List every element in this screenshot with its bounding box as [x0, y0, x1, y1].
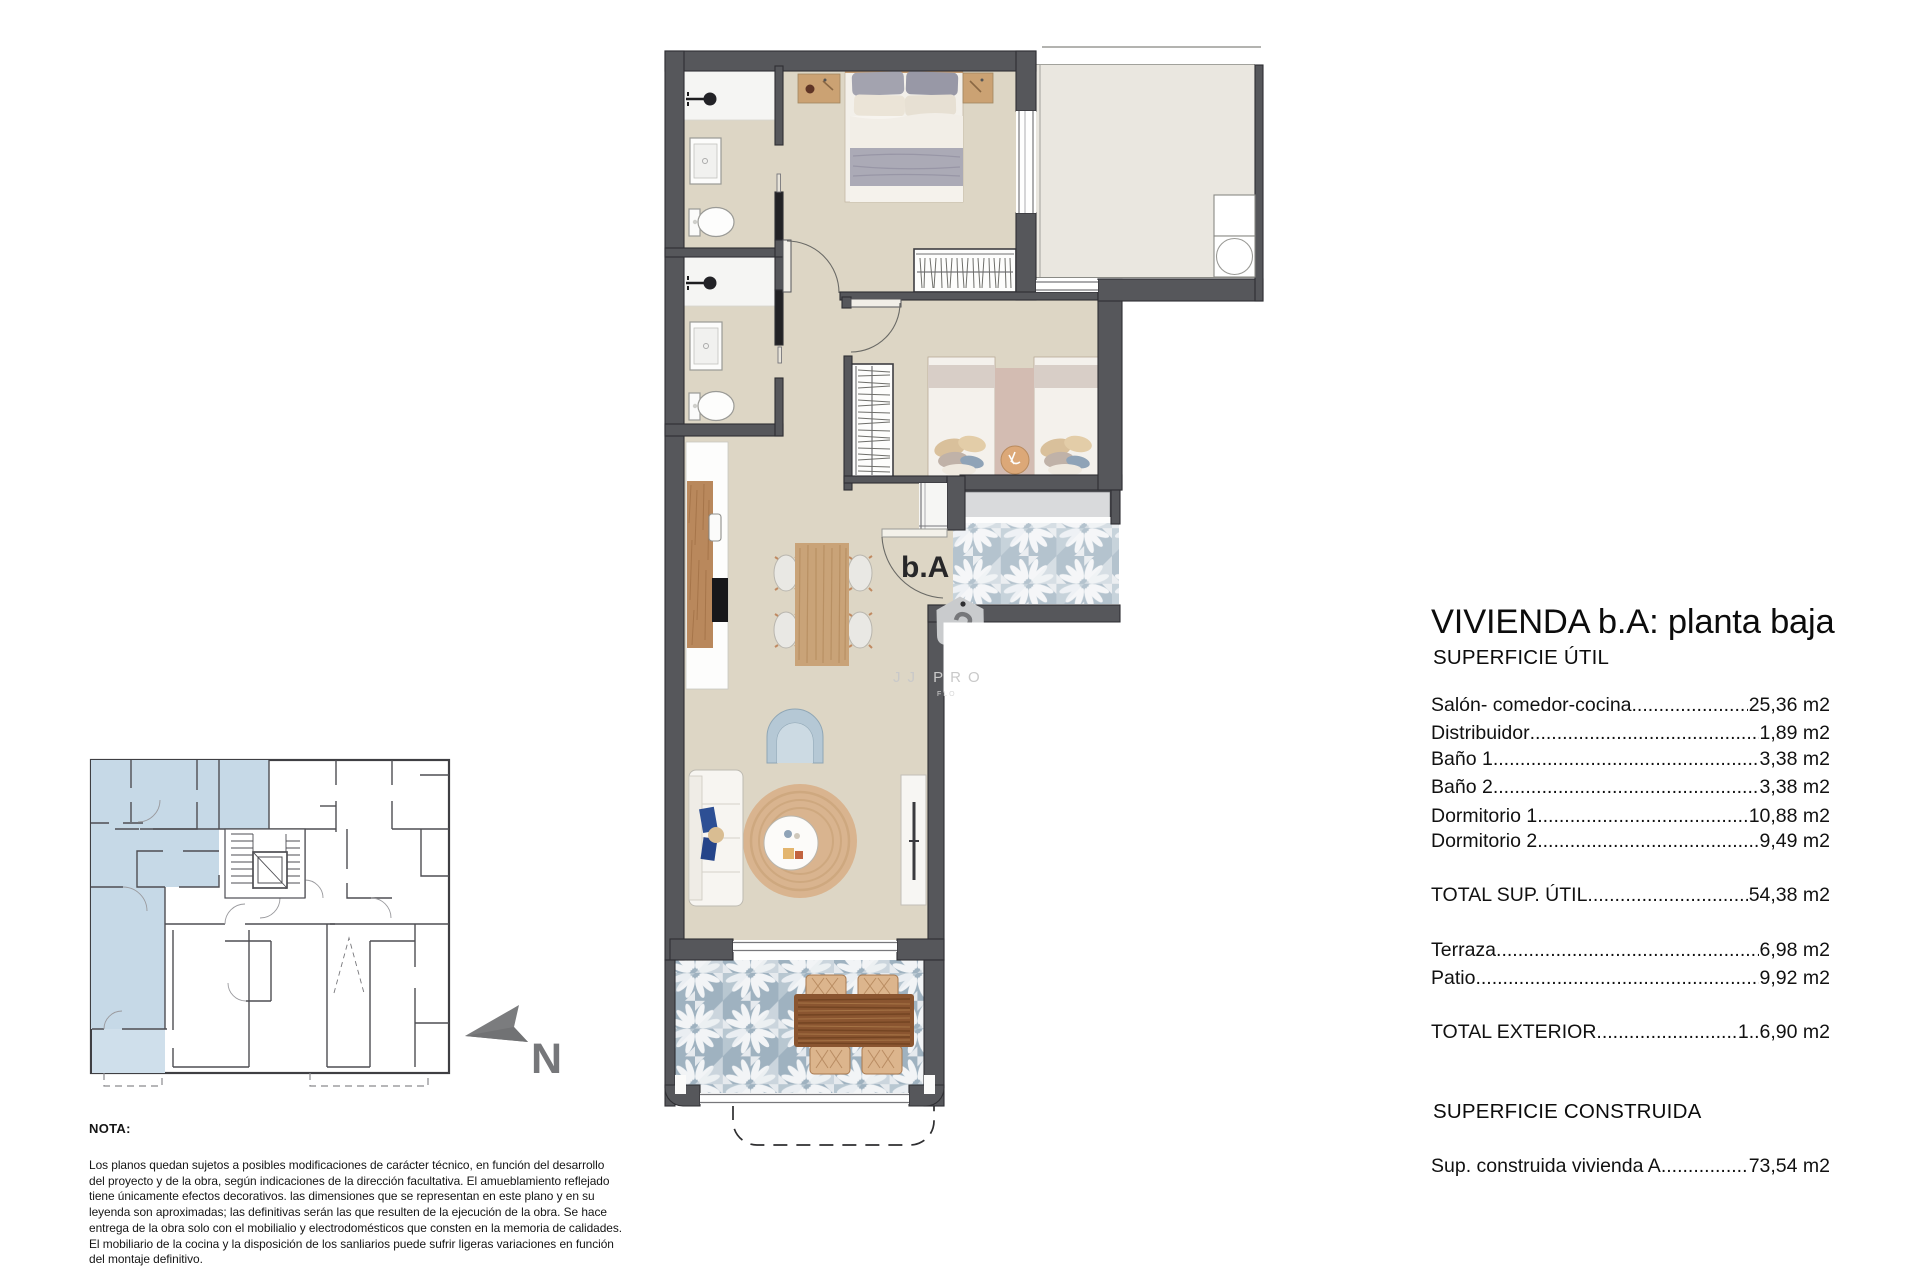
svg-text:FLO: FLO [937, 691, 957, 698]
svg-text:b.A: b.A [901, 551, 949, 584]
svg-text:JJ PRO: JJ PRO [893, 669, 987, 686]
svg-text:N: N [531, 1035, 562, 1083]
